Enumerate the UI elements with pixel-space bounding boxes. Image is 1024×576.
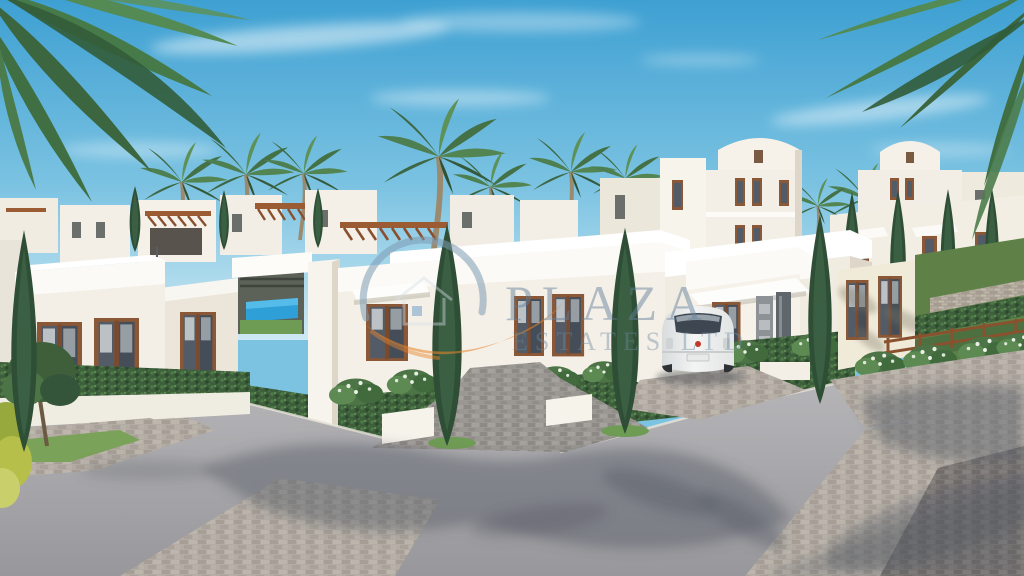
watermark-title: PLAZA xyxy=(505,275,711,331)
watermark-subtitle: ESTATES LTD xyxy=(512,327,750,356)
villa-render-image: PLAZA ESTATES LTD xyxy=(0,0,1024,576)
cypress-grass-island xyxy=(428,437,476,449)
far-right-villa-window xyxy=(878,276,902,338)
